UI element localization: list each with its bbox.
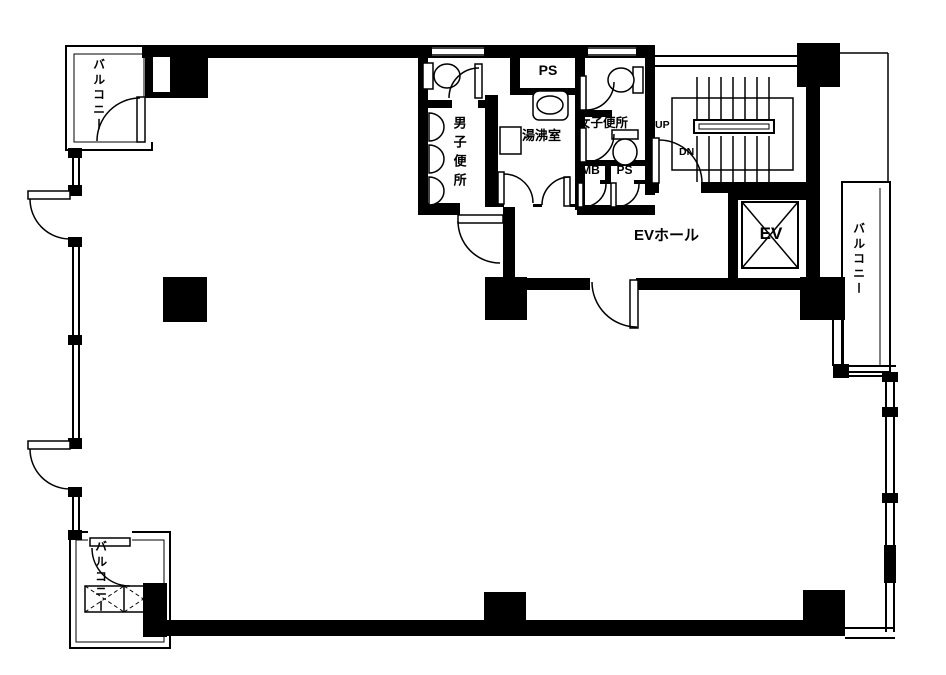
- urinal-fixture-icon: [429, 177, 444, 205]
- column-mid-right: [800, 277, 845, 320]
- column-top-left-notch: [152, 57, 170, 92]
- wall-mb-ps-jamb: [600, 180, 611, 184]
- ps-lower-label: PS: [609, 164, 640, 177]
- floor-plan: バルコニー バルコニー バルコニー 男子便所 湯沸室 女子便所 PS MB PS…: [0, 0, 946, 675]
- toilet-tank: [612, 130, 638, 139]
- toilet-fixture-icon: [434, 64, 460, 88]
- door-leaf: [630, 280, 638, 328]
- wall-evhall-bottom-b: [636, 278, 808, 290]
- balcony-bottom-left-label: バルコニー: [94, 540, 107, 632]
- door-swing-arc-icon: [504, 174, 533, 203]
- balcony-right-rail: [842, 182, 890, 372]
- door-swing-arc-icon: [458, 221, 500, 263]
- door-leaf: [564, 177, 570, 206]
- kitchenette-label: 湯沸室: [522, 129, 578, 143]
- door-swing-arc-icon: [586, 134, 614, 162]
- mens-toilet-label: 男子便所: [452, 116, 466, 212]
- wall-kitchenette-sill-b: [533, 204, 542, 207]
- toilet-tank: [423, 63, 433, 89]
- door-leaf: [580, 76, 586, 110]
- ps-upper-label: PS: [520, 63, 576, 78]
- wall-mens-stall-divider: [418, 100, 452, 108]
- stairs-down-label: DN: [679, 147, 694, 158]
- urinal-fixture-icon: [429, 113, 444, 141]
- column-bottom-center: [484, 592, 526, 636]
- sink-fixture-icon: [537, 96, 563, 114]
- column-bottom-right: [803, 590, 845, 636]
- door-leaf: [458, 215, 503, 223]
- door-swing-arc-icon: [30, 449, 70, 489]
- ev-hall-label: EVホール: [634, 228, 720, 244]
- column-mid-center: [485, 277, 527, 320]
- mens-toilet-fixture: [423, 63, 460, 89]
- door-swing-arc-icon: [616, 184, 639, 207]
- toilet-fixture-icon: [613, 139, 637, 165]
- womens-toilet-label: 女子便所: [578, 117, 642, 130]
- door-leaf: [28, 441, 70, 449]
- column-mid-left: [163, 277, 207, 322]
- rail-mullion: [833, 364, 849, 378]
- door-swing-arc-icon: [583, 184, 606, 207]
- left-window-mullions: [68, 148, 82, 540]
- building-outer-edge: [840, 53, 888, 182]
- door-leaf: [28, 191, 70, 199]
- door-leaf: [652, 138, 659, 183]
- stairwell-top-wall: [652, 56, 806, 66]
- mb-label: MB: [577, 164, 604, 177]
- plan-drawing: [0, 0, 946, 675]
- wall-evhall-bottom-a: [527, 278, 590, 290]
- door-leaf: [137, 97, 145, 142]
- door-leaf: [611, 183, 616, 207]
- toilet-fixture-icon: [608, 68, 634, 92]
- balcony-right-label: バルコニー: [852, 222, 865, 324]
- right-window-mullions: [882, 372, 898, 583]
- door-swing-arc-icon: [30, 199, 70, 239]
- door-gap: [145, 98, 159, 142]
- elevator-label: EV: [754, 225, 788, 243]
- womens-toilet-fixture-2: [612, 130, 638, 165]
- door-leaf: [578, 183, 583, 207]
- urinals: [429, 113, 444, 205]
- water-heater-box: [500, 127, 521, 154]
- stairs-up-label: UP: [655, 120, 670, 131]
- wall-ev-shaft-left: [728, 190, 738, 290]
- wall-right-upper: [806, 55, 820, 290]
- door-leaf: [475, 64, 482, 98]
- stair-handrail: [694, 120, 774, 133]
- wall-ev-shaft-top: [728, 190, 818, 200]
- door-leaf: [498, 172, 504, 204]
- staircase: [672, 77, 793, 182]
- wall-kitchenette-sill-c: [570, 204, 577, 207]
- urinal-fixture-icon: [429, 145, 444, 173]
- wall-corridor: [503, 207, 515, 279]
- kitchenette-sink: [533, 91, 568, 120]
- door-leaf: [580, 128, 586, 162]
- wall-kitchenette-left: [485, 95, 498, 207]
- balcony-top-left-label: バルコニー: [92, 58, 105, 152]
